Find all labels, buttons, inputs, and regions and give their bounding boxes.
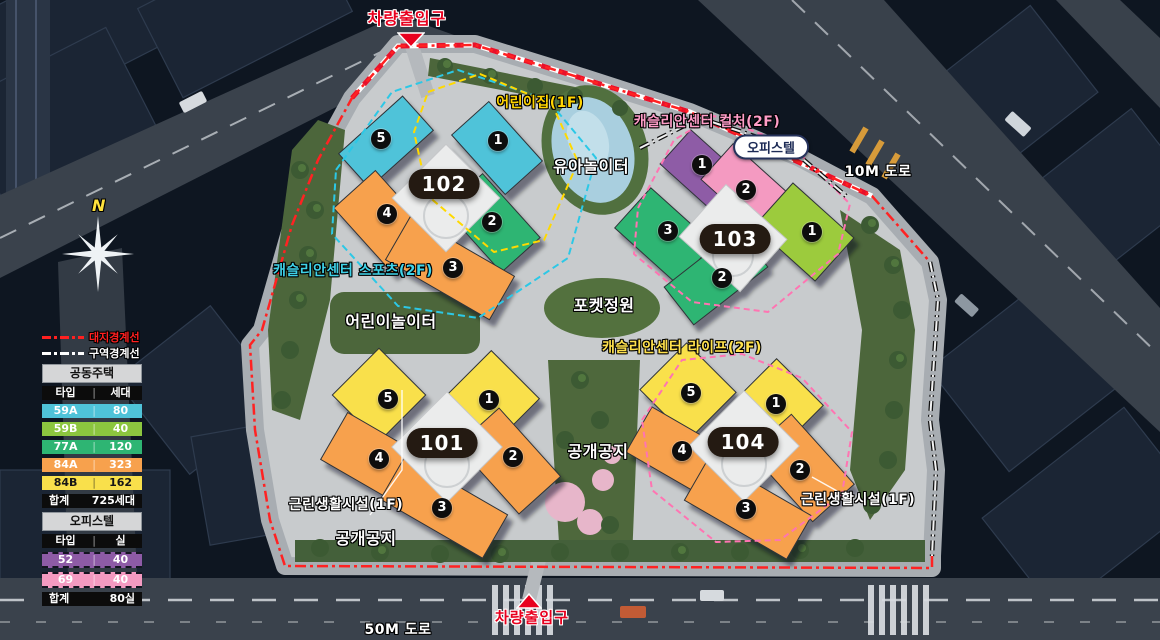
officetel-label: 오피스텔 [733, 135, 809, 160]
housing-total-value: 725세대 [92, 494, 135, 508]
divider: | [89, 422, 99, 436]
legend-zone-boundary: 구역경계선 [42, 346, 142, 360]
building-102-badge: 102 [409, 169, 480, 199]
unit-circle-104-5: 5 [681, 383, 701, 403]
site-plan: N 차량출입구 차량출입구 어린이집(1F) 캐슬리안센터 컬처(2F) 오피스… [0, 0, 1160, 640]
vehicle-entrance-label-bottom: 차량출입구 [495, 607, 569, 628]
housing-col-count: 세대 [99, 386, 142, 400]
legend-row-84a: 84A | 323 [42, 458, 142, 472]
zone-boundary-label: 구역경계선 [89, 345, 140, 361]
zone-boundary-line-sample [42, 352, 84, 355]
unit-circle-103-2: 2 [712, 268, 732, 288]
compass-north-label: N [92, 196, 105, 215]
count-52: 40 [99, 554, 142, 566]
pocket-garden-label: 포켓정원 [574, 292, 635, 316]
count-59a: 80 [99, 404, 142, 418]
unit-circle-101-5: 5 [378, 389, 398, 409]
unit-circle-104-2: 2 [790, 460, 810, 480]
divider: | [89, 476, 99, 490]
legend-housing-title: 공동주택 [42, 364, 142, 383]
count-59b: 40 [99, 422, 142, 436]
children-playground-label: 어린이놀이터 [345, 308, 436, 332]
count-84a: 323 [99, 458, 142, 472]
building-103-badge: 103 [700, 224, 771, 254]
count-77a: 120 [99, 440, 142, 454]
divider: | [89, 458, 99, 472]
unit-circle-102-3: 3 [443, 258, 463, 278]
divider: | [89, 440, 99, 454]
officetel-col-count: 실 [99, 534, 142, 548]
legend-officetel-columns: 타입 | 실 [42, 534, 142, 548]
legend: 대지경계선 구역경계선 공동주택 타입 | 세대 59A | 80 59B | … [42, 330, 142, 610]
housing-col-type: 타입 [42, 386, 89, 400]
entrance-arrow-up-icon [516, 593, 542, 609]
toddler-playground-label: 유아놀이터 [553, 153, 629, 177]
count-69: 40 [99, 574, 142, 586]
count-84b: 162 [99, 476, 142, 490]
unit-circle-101-1: 1 [479, 390, 499, 410]
road-10m-label: 10M 도로 [844, 161, 911, 181]
legend-row-69: 69 | 40 [42, 572, 142, 588]
legend-row-77a: 77A | 120 [42, 440, 142, 454]
housing-total-label: 합계 [49, 494, 69, 508]
type-84b: 84B [42, 476, 89, 490]
unit-circle-103-1-officetel: 1 [692, 155, 712, 175]
unit-circle-104-1: 1 [766, 394, 786, 414]
unit-circle-101-4: 4 [369, 449, 389, 469]
legend-officetel-total: 합계 80실 [42, 592, 142, 606]
neighborhood-facility-label-right: 근린생활시설(1F) [801, 489, 915, 509]
type-59a: 59A [42, 404, 89, 418]
unit-circle-101-3: 3 [432, 498, 452, 518]
unit-circle-103-2-officetel: 2 [736, 180, 756, 200]
unit-circle-101-2: 2 [503, 447, 523, 467]
legend-officetel-title: 오피스텔 [42, 512, 142, 531]
housing-col-divider: | [89, 386, 99, 400]
center-life-label: 캐슬리안센터 라이프(2F) [602, 337, 762, 357]
officetel-total-value: 80실 [110, 592, 135, 606]
legend-row-59b: 59B | 40 [42, 422, 142, 436]
officetel-total-label: 합계 [49, 592, 69, 606]
type-84a: 84A [42, 458, 89, 472]
legend-row-59a: 59A | 80 [42, 404, 142, 418]
daycare-label: 어린이집(1F) [496, 92, 584, 112]
legend-housing-total: 합계 725세대 [42, 494, 142, 508]
unit-circle-103-1: 1 [802, 222, 822, 242]
type-52: 52 [42, 554, 89, 566]
legend-housing-columns: 타입 | 세대 [42, 386, 142, 400]
unit-circle-102-2: 2 [482, 212, 502, 232]
legend-row-52: 52 | 40 [42, 552, 142, 568]
type-59b: 59B [42, 422, 89, 436]
type-77a: 77A [42, 440, 89, 454]
center-culture-label: 캐슬리안센터 컬처(2F) [634, 111, 781, 131]
vehicle-entrance-label-top: 차량출입구 [368, 5, 447, 29]
unit-circle-103-3: 3 [658, 221, 678, 241]
legend-site-boundary: 대지경계선 [42, 330, 142, 344]
legend-row-84b: 84B | 162 [42, 476, 142, 490]
site-boundary-label: 대지경계선 [89, 329, 140, 345]
open-space-label-center: 공개공지 [568, 438, 629, 462]
officetel-col-type: 타입 [42, 534, 89, 548]
building-101-badge: 101 [407, 428, 478, 458]
neighborhood-facility-label-left: 근린생활시설(1F) [289, 494, 403, 514]
divider: | [89, 554, 99, 566]
map-labels-layer: 차량출입구 차량출입구 어린이집(1F) 캐슬리안센터 컬처(2F) 오피스텔 … [0, 0, 1160, 640]
unit-circle-104-4: 4 [672, 441, 692, 461]
center-sports-label: 캐슬리안센터 스포츠(2F) [273, 260, 433, 280]
entrance-arrow-down-icon [397, 32, 425, 48]
divider: | [89, 534, 99, 548]
building-104-badge: 104 [708, 427, 779, 457]
open-space-label-bottom-left: 공개공지 [336, 525, 397, 549]
unit-circle-102-1: 1 [488, 131, 508, 151]
site-boundary-line-sample [42, 336, 84, 339]
type-69: 69 [42, 574, 89, 586]
divider: | [89, 574, 99, 586]
road-50m-label: 50M 도로 [364, 619, 431, 639]
unit-circle-102-4: 4 [377, 204, 397, 224]
compass: N [56, 196, 140, 310]
unit-circle-102-5: 5 [371, 129, 391, 149]
divider: | [89, 404, 99, 418]
unit-circle-104-3: 3 [736, 499, 756, 519]
